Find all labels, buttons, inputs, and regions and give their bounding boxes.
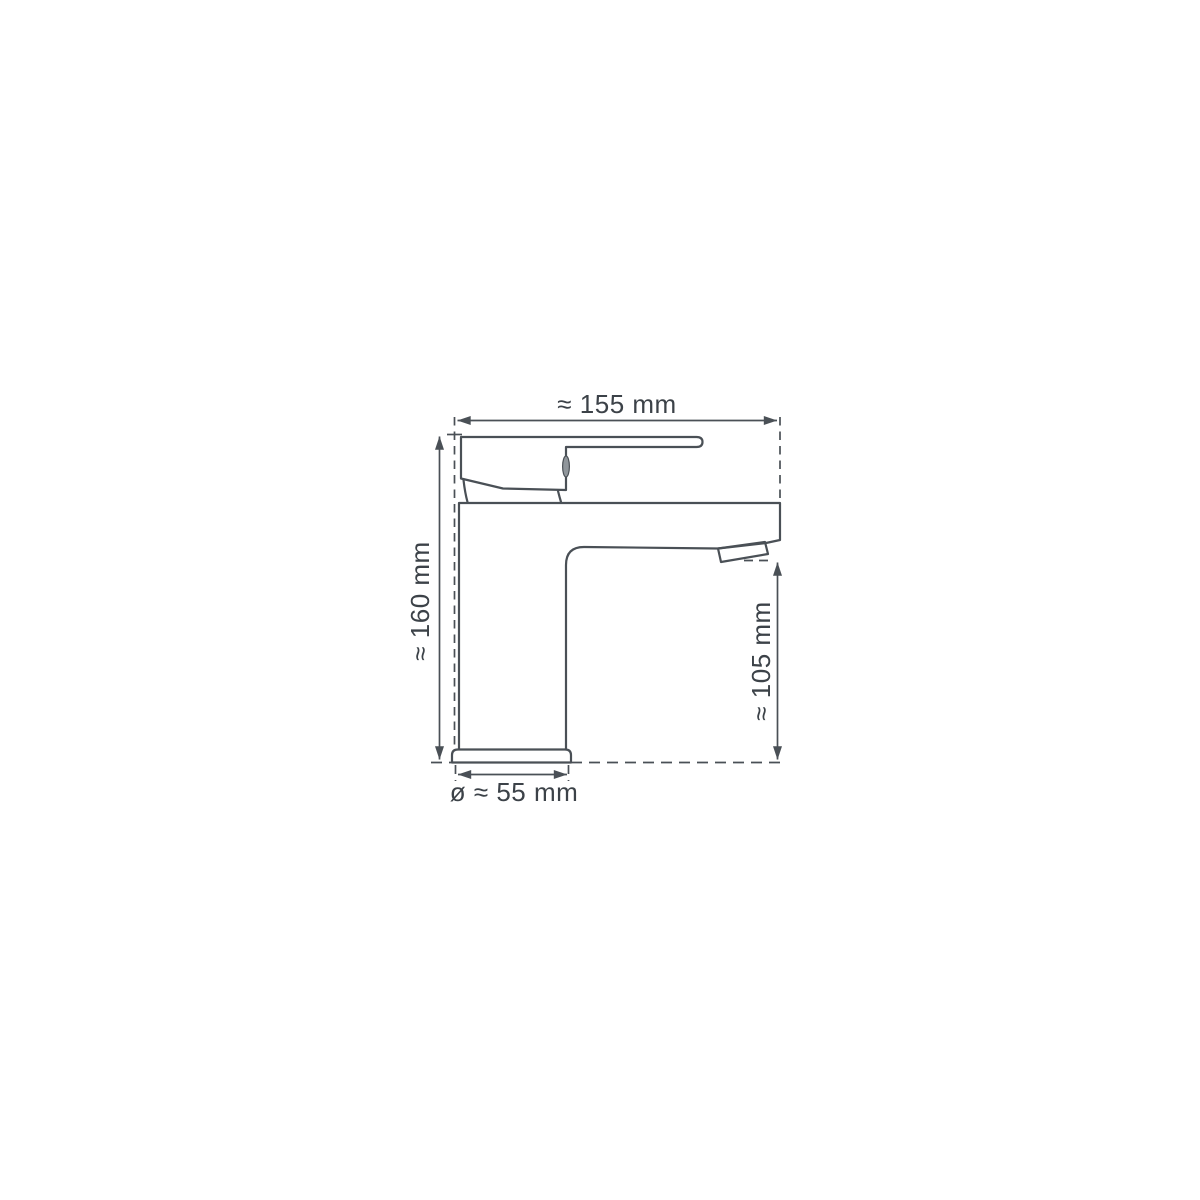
dimension-base-diameter: ø ≈ 55 mm [450, 765, 579, 807]
spout-aerator [718, 542, 768, 562]
dimension-label-base-diameter: ø ≈ 55 mm [450, 777, 579, 807]
handle-neck-left-line [464, 480, 468, 502]
handle-neck-right-line [558, 491, 561, 502]
dimension-overall-width: ≈ 155 mm [455, 389, 781, 747]
base-flange [452, 750, 571, 763]
handle-lever [461, 437, 703, 490]
handle-joint-oval [563, 456, 570, 477]
dimension-overall-height: ≈ 160 mm [405, 435, 462, 760]
dimension-label-spout-height: ≈ 105 mm [746, 601, 776, 720]
dimension-label-overall-height: ≈ 160 mm [405, 541, 435, 660]
faucet-dimension-drawing: ≈ 155 mm ≈ 160 mm ≈ 105 mm ø ≈ 55 mm [0, 0, 1200, 1200]
drawing-canvas: ≈ 155 mm ≈ 160 mm ≈ 105 mm ø ≈ 55 mm [0, 0, 1200, 1200]
faucet-body-outline [459, 503, 780, 749]
dimension-spout-height: ≈ 105 mm [744, 561, 778, 760]
faucet-figure [452, 437, 780, 763]
dimension-label-overall-width: ≈ 155 mm [557, 389, 676, 419]
